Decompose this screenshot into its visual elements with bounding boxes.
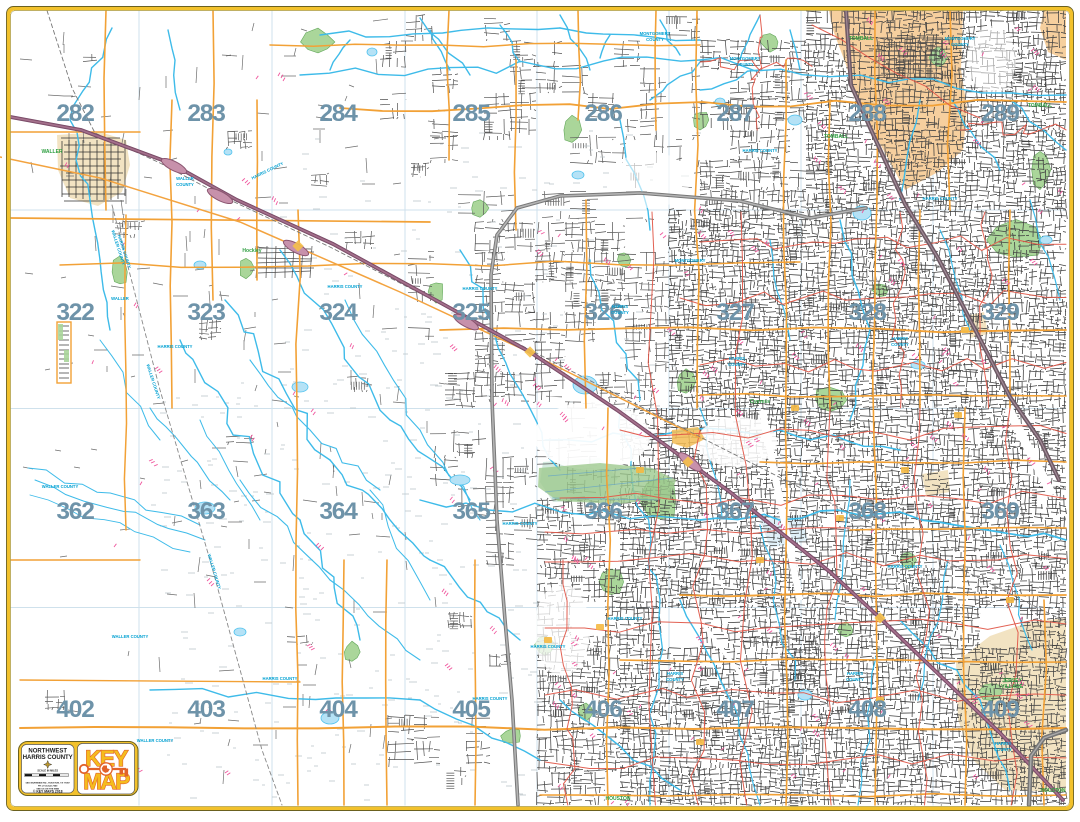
svg-text:289: 289	[981, 100, 1019, 127]
svg-text:HARRIS: HARRIS	[729, 356, 745, 361]
svg-text:COUNTY: COUNTY	[611, 310, 629, 315]
svg-text:HARRIS: HARRIS	[995, 741, 1011, 746]
svg-text:367: 367	[716, 498, 754, 525]
svg-text:HARRIS: HARRIS	[847, 671, 863, 676]
svg-text:WALLER COUNTY: WALLER COUNTY	[42, 484, 79, 489]
svg-text:406: 406	[584, 696, 622, 723]
svg-text:366: 366	[584, 498, 622, 525]
svg-text:COUNTY: COUNTY	[666, 677, 684, 682]
svg-text:WALLER: WALLER	[111, 296, 129, 301]
svg-text:MONTGOMERY: MONTGOMERY	[945, 36, 976, 41]
svg-text:369: 369	[981, 498, 1019, 525]
svg-text:COUNTY: COUNTY	[176, 182, 194, 187]
svg-text:407: 407	[716, 696, 754, 723]
svg-text:288: 288	[848, 100, 886, 127]
svg-text:HARRIS COUNTY: HARRIS COUNTY	[923, 196, 958, 201]
svg-text:325: 325	[452, 299, 490, 326]
svg-text:HOUSTON: HOUSTON	[1041, 788, 1066, 794]
svg-text:COUNTY: COUNTY	[646, 37, 664, 42]
svg-text:TOMBALL: TOMBALL	[1028, 103, 1052, 109]
svg-text:PH: (713) 522-7949: PH: (713) 522-7949	[38, 784, 58, 787]
svg-text:TOMBALL: TOMBALL	[824, 134, 848, 140]
svg-text:Cypress: Cypress	[750, 399, 770, 405]
svg-text:328: 328	[848, 299, 886, 326]
svg-text:COUNTY: COUNTY	[846, 677, 864, 682]
svg-text:365: 365	[452, 498, 490, 525]
svg-text:HARRIS COUNTY: HARRIS COUNTY	[531, 644, 566, 649]
svg-text:284: 284	[319, 100, 358, 127]
svg-text:286: 286	[584, 100, 622, 127]
svg-text:403: 403	[187, 696, 225, 723]
svg-text:287: 287	[716, 100, 754, 127]
svg-text:Hockley: Hockley	[242, 248, 261, 254]
svg-text:COUNTY: COUNTY	[891, 342, 909, 347]
svg-text:TOMBALL: TOMBALL	[849, 36, 873, 42]
svg-text:COUNTY: COUNTY	[736, 62, 754, 67]
svg-text:HARRIS COUNTY: HARRIS COUNTY	[328, 284, 363, 289]
svg-text:282: 282	[56, 100, 94, 127]
svg-text:HARRIS COUNTY: HARRIS COUNTY	[158, 344, 193, 349]
svg-text:HARRIS: HARRIS	[892, 336, 908, 341]
svg-text:WALLER: WALLER	[41, 149, 62, 155]
svg-text:© KEY MAPS 2018: © KEY MAPS 2018	[33, 790, 63, 794]
svg-text:323: 323	[187, 299, 225, 326]
svg-text:HARRIS COUNTY: HARRIS COUNTY	[263, 676, 298, 681]
svg-text:COUNTY: COUNTY	[728, 362, 746, 367]
svg-text:HARRIS: HARRIS	[667, 671, 683, 676]
svg-text:364: 364	[319, 498, 358, 525]
svg-text:363: 363	[187, 498, 225, 525]
svg-text:HARRIS COUNTY: HARRIS COUNTY	[473, 696, 508, 701]
svg-text:368: 368	[848, 498, 886, 525]
svg-text:WALLER: WALLER	[176, 176, 194, 181]
svg-text:COUNTY: COUNTY	[994, 747, 1012, 752]
svg-text:285: 285	[452, 100, 490, 127]
svg-text:VILLAGE: VILLAGE	[1001, 684, 1023, 690]
svg-text:HARRIS COUNTY: HARRIS COUNTY	[608, 616, 643, 621]
svg-text:324: 324	[319, 299, 358, 326]
svg-text:WALLER COUNTY: WALLER COUNTY	[112, 634, 149, 639]
svg-text:WALLER COUNTY: WALLER COUNTY	[137, 738, 174, 743]
svg-text:MONTGOMERY: MONTGOMERY	[640, 31, 671, 36]
svg-text:HARRIS COUNTY: HARRIS COUNTY	[743, 148, 778, 153]
svg-text:404: 404	[319, 696, 358, 723]
svg-text:HARRIS COUNTY: HARRIS COUNTY	[503, 521, 538, 526]
svg-text:MONTGOMERY: MONTGOMERY	[730, 56, 761, 61]
svg-text:HARRIS: HARRIS	[612, 304, 628, 309]
svg-text:327: 327	[716, 299, 754, 326]
svg-text:COUNTY: COUNTY	[951, 42, 969, 47]
svg-text:HARRIS COUNTY: HARRIS COUNTY	[888, 564, 923, 569]
svg-text:5819 BURNSIDE RD., HOUSTON, TX: 5819 BURNSIDE RD., HOUSTON, TX 77087	[26, 783, 71, 785]
svg-text:362: 362	[56, 498, 94, 525]
svg-text:HARRIS COUNTY: HARRIS COUNTY	[463, 286, 498, 291]
svg-text:322: 322	[56, 299, 94, 326]
svg-text:NORTHWEST: NORTHWEST	[28, 749, 67, 755]
svg-text:402: 402	[56, 696, 94, 723]
svg-text:SCALE IN MILES: SCALE IN MILES	[37, 769, 58, 773]
svg-text:HOUSTON: HOUSTON	[606, 796, 631, 802]
svg-text:409: 409	[981, 696, 1019, 723]
svg-text:329: 329	[981, 299, 1019, 326]
svg-text:408: 408	[848, 696, 886, 723]
svg-text:MONTGOMERY: MONTGOMERY	[675, 258, 706, 263]
svg-text:283: 283	[187, 100, 225, 127]
